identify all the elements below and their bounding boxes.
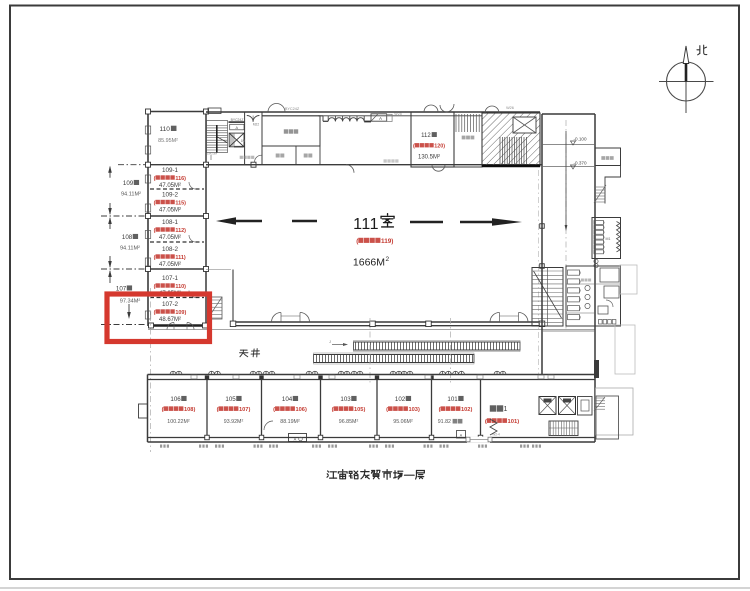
svg-text:110): 110) bbox=[175, 284, 186, 290]
svg-text:107): 107) bbox=[239, 407, 250, 413]
svg-text:107-2: 107-2 bbox=[162, 301, 179, 308]
svg-text:116): 116) bbox=[175, 176, 186, 182]
svg-text:2: 2 bbox=[386, 256, 390, 263]
svg-text:(: ( bbox=[332, 407, 334, 413]
svg-text:47.05M²: 47.05M² bbox=[159, 235, 181, 241]
svg-text:(: ( bbox=[439, 407, 441, 413]
svg-text:(: ( bbox=[162, 407, 164, 413]
svg-text:103: 103 bbox=[340, 396, 351, 403]
svg-text:106: 106 bbox=[170, 396, 181, 403]
svg-text:91.82: 91.82 bbox=[438, 419, 451, 425]
svg-text:106): 106) bbox=[295, 407, 306, 413]
svg-text:M1: M1 bbox=[606, 237, 611, 241]
svg-text:108): 108) bbox=[184, 407, 195, 413]
svg-text:96.85M²: 96.85M² bbox=[339, 419, 359, 425]
svg-text:47.05M²: 47.05M² bbox=[159, 262, 181, 268]
svg-text:100.22M²: 100.22M² bbox=[167, 419, 190, 425]
svg-text:W25: W25 bbox=[394, 112, 401, 116]
svg-text:A: A bbox=[236, 126, 239, 130]
svg-text:(: ( bbox=[154, 228, 156, 234]
svg-text:101): 101) bbox=[508, 419, 520, 425]
svg-text:(: ( bbox=[154, 284, 156, 290]
svg-text:(: ( bbox=[217, 407, 219, 413]
svg-text:M22: M22 bbox=[253, 123, 259, 127]
svg-text:47.05M²: 47.05M² bbox=[159, 208, 181, 214]
svg-text:120): 120) bbox=[434, 144, 445, 150]
svg-text:111: 111 bbox=[353, 216, 379, 233]
svg-text:108-2: 108-2 bbox=[162, 246, 179, 253]
svg-text:110: 110 bbox=[160, 126, 171, 133]
svg-text:109: 109 bbox=[123, 180, 134, 187]
svg-text:(: ( bbox=[386, 407, 388, 413]
svg-text:1M: 1M bbox=[241, 139, 246, 143]
svg-text:108-1: 108-1 bbox=[162, 219, 179, 226]
svg-text:88.19M²: 88.19M² bbox=[280, 419, 300, 425]
svg-text:(: ( bbox=[154, 200, 156, 206]
svg-text:109-1: 109-1 bbox=[162, 167, 179, 174]
svg-text:102: 102 bbox=[395, 396, 406, 403]
svg-text:BYC24Z: BYC24Z bbox=[285, 107, 300, 111]
svg-text:85.95M²: 85.95M² bbox=[158, 138, 178, 144]
svg-text:48.67M²: 48.67M² bbox=[159, 317, 181, 323]
svg-text:112: 112 bbox=[421, 133, 431, 139]
svg-text:107-1: 107-1 bbox=[162, 275, 179, 282]
svg-text:94.11M²: 94.11M² bbox=[120, 246, 140, 252]
svg-text:1M23M: 1M23M bbox=[207, 152, 218, 156]
svg-text:W26: W26 bbox=[506, 106, 514, 110]
svg-text:94.11M²: 94.11M² bbox=[121, 192, 141, 198]
svg-text:(: ( bbox=[413, 144, 415, 150]
svg-text:105): 105) bbox=[354, 407, 365, 413]
svg-text:103): 103) bbox=[408, 407, 419, 413]
svg-text:A: A bbox=[379, 116, 382, 121]
svg-text:93.92M²: 93.92M² bbox=[224, 419, 244, 425]
svg-text:95.06M²: 95.06M² bbox=[393, 419, 413, 425]
svg-text:115): 115) bbox=[175, 200, 186, 206]
svg-text:47.05M²: 47.05M² bbox=[159, 183, 181, 189]
svg-text:109): 109) bbox=[175, 310, 186, 316]
svg-text:109-2: 109-2 bbox=[162, 192, 179, 199]
svg-text:104: 104 bbox=[282, 396, 293, 403]
svg-text:119): 119) bbox=[381, 238, 393, 245]
svg-text:(: ( bbox=[154, 255, 156, 261]
svg-text:(: ( bbox=[154, 176, 156, 182]
svg-text:(: ( bbox=[273, 407, 275, 413]
svg-text:105: 105 bbox=[225, 396, 236, 403]
svg-text:101: 101 bbox=[447, 396, 458, 403]
svg-text:108: 108 bbox=[122, 234, 133, 241]
svg-text:130.5M²: 130.5M² bbox=[418, 155, 440, 161]
svg-text:112): 112) bbox=[175, 228, 186, 234]
svg-text:J: J bbox=[329, 340, 331, 344]
svg-text:1: 1 bbox=[504, 406, 508, 413]
svg-text:(: ( bbox=[485, 419, 487, 425]
svg-text:A: A bbox=[294, 437, 297, 442]
svg-text:97.34M²: 97.34M² bbox=[120, 299, 141, 305]
svg-text:102): 102) bbox=[461, 407, 472, 413]
svg-text:(: ( bbox=[154, 310, 156, 316]
svg-text:111): 111) bbox=[175, 255, 186, 261]
svg-text:1666M: 1666M bbox=[353, 257, 385, 269]
